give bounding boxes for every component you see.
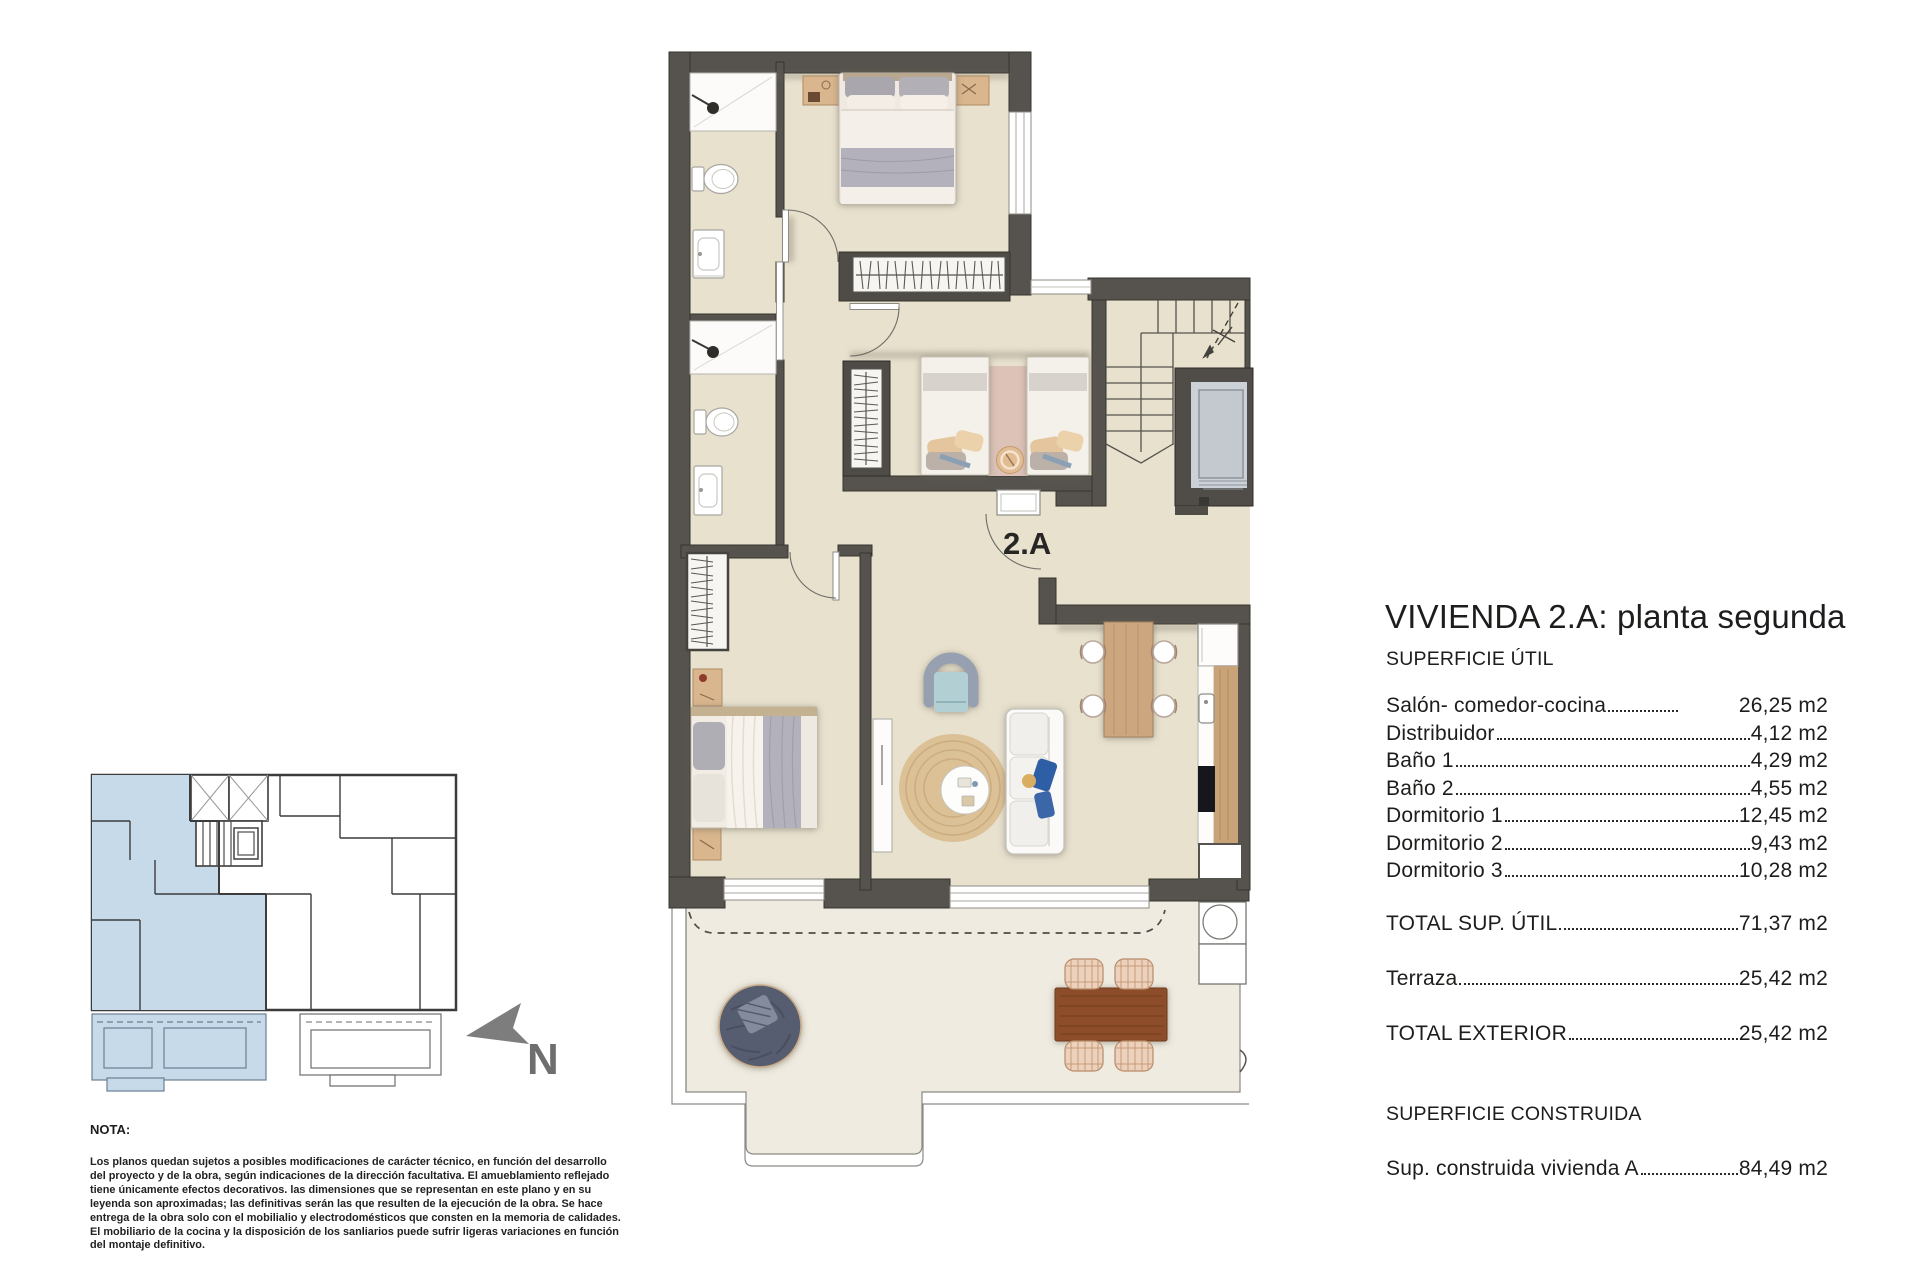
svg-text:N: N: [527, 1035, 559, 1084]
